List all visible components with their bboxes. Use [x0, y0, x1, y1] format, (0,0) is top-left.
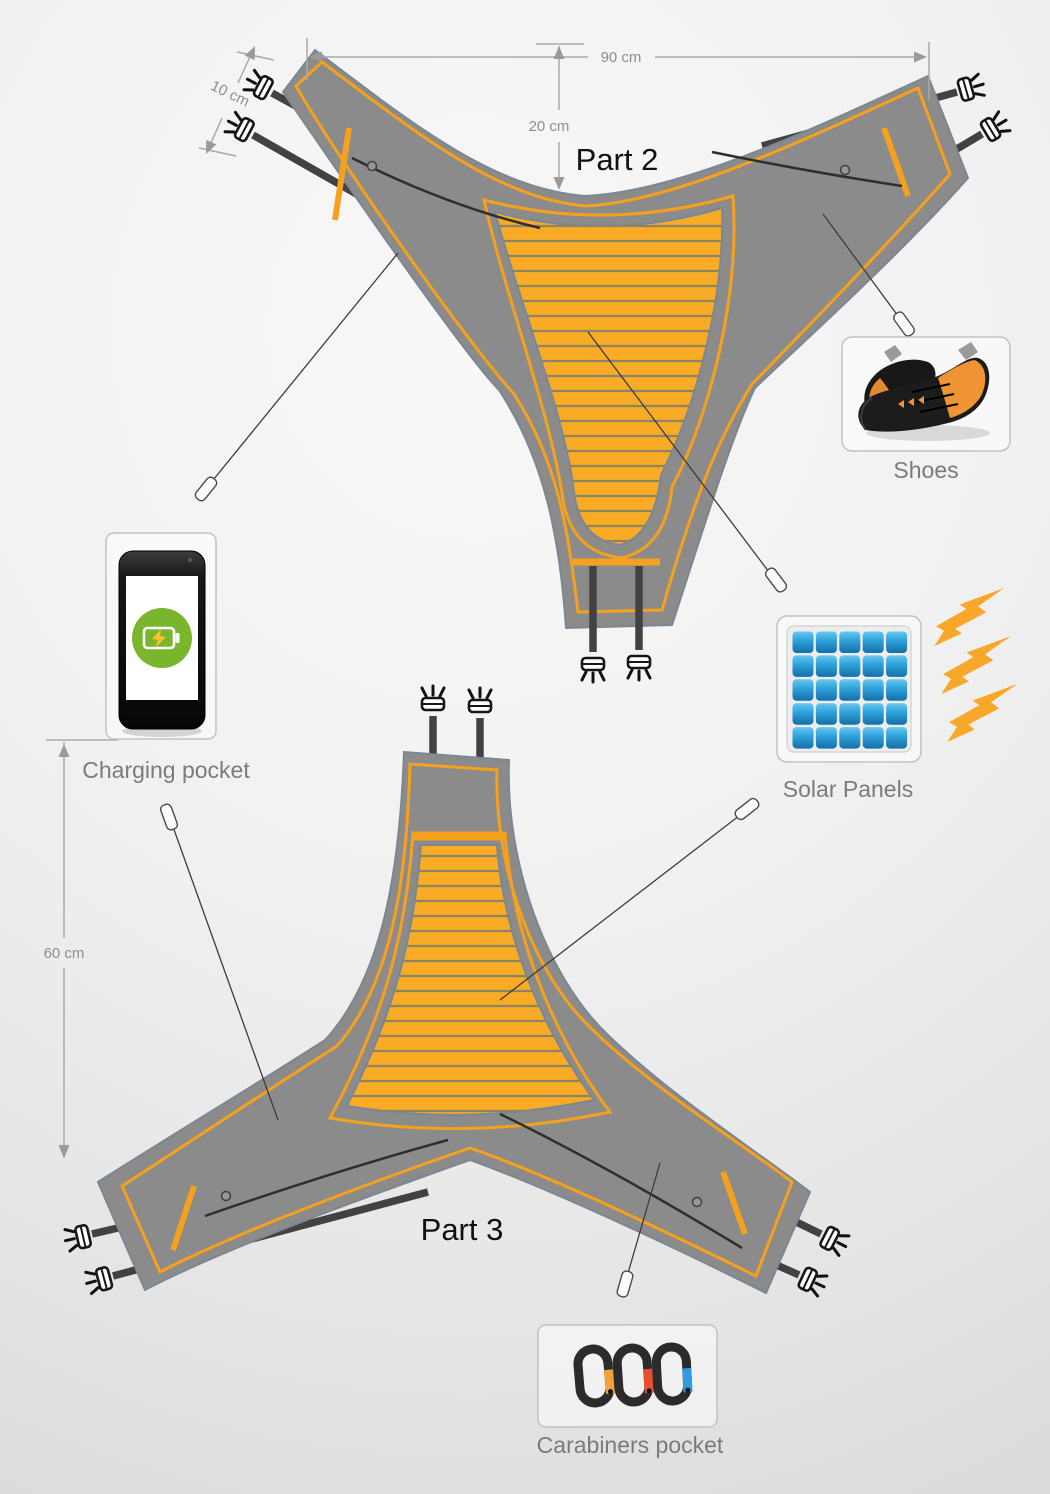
charging-pocket-callout: Charging pocket — [82, 533, 250, 783]
width-dimension: 90 cm — [601, 49, 642, 66]
smartphone-icon — [119, 551, 205, 737]
strap-buckle-icon — [980, 111, 1012, 142]
strap-buckle-icon — [84, 1267, 113, 1294]
part3-label: Part 3 — [421, 1212, 504, 1247]
zipper-pull-icon — [222, 1192, 231, 1201]
shoes-callout: Shoes — [842, 337, 1010, 483]
charging-pocket-label: Charging pocket — [82, 757, 250, 783]
carabiners-pocket-label: Carabiners pocket — [537, 1432, 724, 1458]
callout-marker — [733, 797, 760, 822]
callout-marker — [159, 803, 178, 831]
shoes-label: Shoes — [893, 457, 958, 483]
sun-ray-arrows — [925, 571, 1019, 753]
callout-marker — [892, 310, 916, 338]
zipper-pull-icon — [368, 162, 377, 171]
callout-marker — [616, 1270, 634, 1298]
height-dimension: 60 cm — [44, 945, 85, 962]
solar-panel-icon — [787, 626, 911, 752]
strap-buckle-icon — [957, 74, 986, 102]
notch-depth-dimension: 20 cm — [529, 118, 570, 135]
battery-charge-icon — [132, 608, 192, 668]
carabiners-callout: Carabiners pocket — [537, 1325, 724, 1458]
strap-buckle-icon — [628, 656, 650, 680]
strap-buckle-icon — [798, 1267, 829, 1297]
strap-buckle-icon — [422, 686, 444, 710]
strap-spacing-dimension: 10 cm — [208, 77, 252, 110]
solar-panels-label: Solar Panels — [783, 776, 913, 802]
strap-buckle-icon — [469, 688, 491, 712]
part2-label: Part 2 — [576, 142, 659, 177]
design-poster: 90 cm 20 cm 10 cm 60 cm Part 2 Part 3 — [0, 0, 1050, 1494]
strap-buckle-icon — [819, 1226, 850, 1256]
zipper-pull-icon — [841, 166, 850, 175]
solar-panels-callout: Solar Panels — [777, 571, 1019, 802]
strap-buckle-icon — [223, 111, 255, 142]
zipper-pull-icon — [693, 1198, 702, 1207]
callout-marker — [764, 566, 788, 593]
callout-marker — [194, 475, 219, 502]
poster-canvas: 90 cm 20 cm 10 cm 60 cm Part 2 Part 3 — [0, 0, 1050, 1494]
strap-buckle-icon — [582, 658, 604, 682]
strap-buckle-icon — [63, 1225, 91, 1252]
